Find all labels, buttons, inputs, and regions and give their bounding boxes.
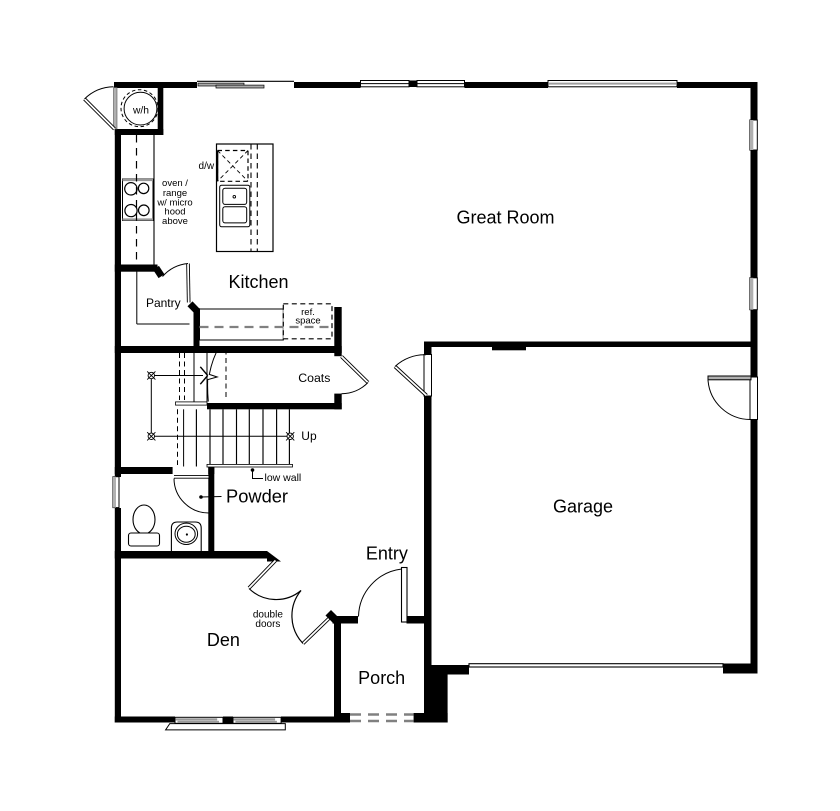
svg-text:Great Room: Great Room [456,208,554,228]
svg-text:Den: Den [207,630,240,650]
svg-text:low wall: low wall [265,472,302,484]
svg-text:Powder: Powder [226,486,288,507]
svg-text:Entry: Entry [366,544,408,564]
svg-text:space: space [295,315,320,326]
svg-text:Pantry: Pantry [146,296,181,310]
svg-text:Garage: Garage [553,497,613,517]
svg-text:Up: Up [301,429,317,443]
svg-text:above: above [162,216,188,227]
svg-text:w/h: w/h [132,106,149,117]
svg-text:Coats: Coats [298,371,330,385]
svg-text:d/w: d/w [199,161,215,172]
svg-text:Porch: Porch [358,668,405,688]
svg-text:Kitchen: Kitchen [228,272,288,292]
svg-text:doors: doors [255,619,280,630]
